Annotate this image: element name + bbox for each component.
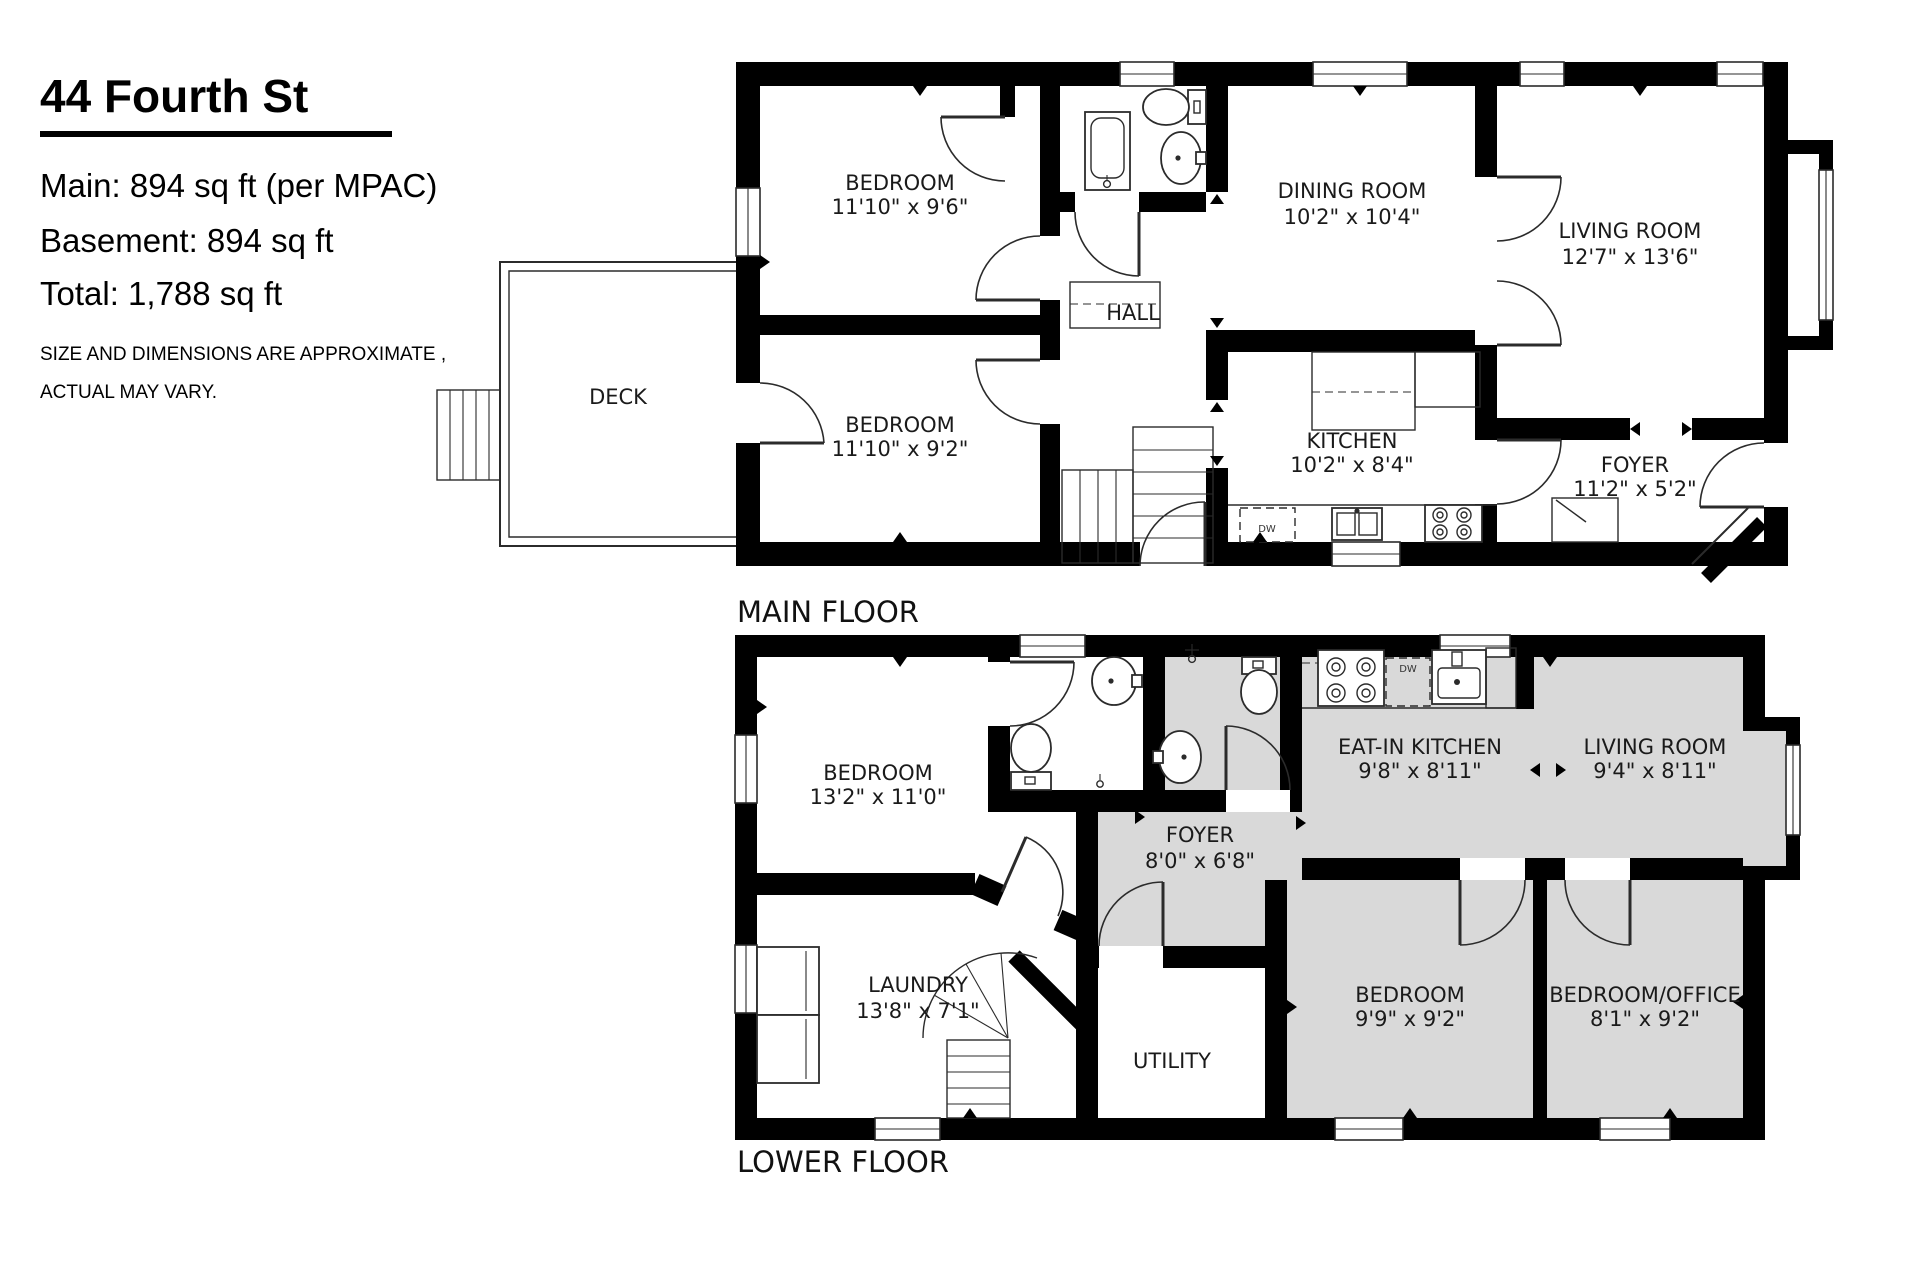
kitchen-sink-icon [1332, 508, 1382, 540]
floorplan-drawing: 44 Fourth St Main: 894 sq ft (per MPAC) … [0, 0, 1920, 1280]
suite-bath-area [1143, 657, 1302, 803]
room-label-foyer: FOYER [1601, 453, 1669, 477]
washer-dryer-icons [757, 947, 819, 1083]
area-total: Total: 1,788 sq ft [40, 275, 282, 312]
door-bedroom2 [976, 360, 1040, 424]
door-front [1700, 443, 1764, 507]
room-label-bedroom1: BEDROOM [845, 171, 955, 195]
window [1520, 62, 1564, 86]
window [735, 735, 757, 803]
main-floor-label: MAIN FLOOR [737, 595, 919, 629]
dishwasher-icon: DW [1240, 508, 1295, 542]
room-dims-bedroom2: 11'10" x 9'2" [832, 437, 969, 461]
room-dims-laundry: 13'8" x 7'1" [856, 999, 979, 1023]
room-dims-lower-foyer: 8'0" x 6'8" [1145, 849, 1255, 873]
room-label-bedroom-office: BEDROOM/OFFICE [1549, 983, 1741, 1007]
room-dims-bedroom1: 11'10" x 9'6" [832, 195, 969, 219]
door-lower-bedroom [1002, 837, 1063, 916]
suite-bay-area [1743, 731, 1786, 866]
room-dims-lower-living: 9'4" x 8'11" [1593, 759, 1716, 783]
room-label-utility: UTILITY [1133, 1049, 1211, 1073]
room-label-hall: HALL [1106, 301, 1160, 325]
room-dims-lower-bedroom2: 9'9" x 9'2" [1355, 1007, 1465, 1031]
room-label-lower-foyer: FOYER [1166, 823, 1234, 847]
room-label-laundry: LAUNDRY [868, 973, 968, 997]
disclaimer-line1: SIZE AND DIMENSIONS ARE APPROXIMATE , [40, 344, 446, 365]
room-label-dining: DINING ROOM [1278, 179, 1427, 203]
area-basement: Basement: 894 sq ft [40, 222, 334, 259]
header-block: 44 Fourth St Main: 894 sq ft (per MPAC) … [40, 70, 446, 403]
window [1332, 542, 1400, 566]
kitchen-sink-icon [1432, 650, 1486, 704]
door-bathroom [1075, 212, 1139, 276]
room-label-deck: DECK [589, 385, 648, 409]
room-label-living: LIVING ROOM [1559, 219, 1702, 243]
main-floor-plan: DW [437, 62, 1833, 629]
room-label-eatin-kitchen: EAT-IN KITCHEN [1338, 735, 1502, 759]
toilet-icon [1143, 89, 1206, 125]
disclaimer-line2: ACTUAL MAY VARY. [40, 382, 217, 403]
stove-icon [1318, 650, 1384, 706]
dw-label: DW [1399, 664, 1417, 675]
french-doors [1497, 177, 1561, 345]
window [1819, 170, 1833, 320]
window [736, 188, 760, 256]
window [1335, 1118, 1403, 1140]
room-dims-living: 12'7" x 13'6" [1562, 245, 1699, 269]
sink-icon [1092, 657, 1142, 705]
page-title: 44 Fourth St [40, 70, 308, 122]
room-label-lower-living: LIVING ROOM [1584, 735, 1727, 759]
lower-floor-plan: DW BEDROOM [735, 635, 1800, 1179]
room-dims-dining: 10'2" x 10'4" [1284, 205, 1421, 229]
door-lower-bath [1010, 662, 1074, 726]
room-dims-eatin-kitchen: 9'8" x 8'11" [1358, 759, 1481, 783]
room-label-lower-bedroom2: BEDROOM [1355, 983, 1465, 1007]
room-dims-bedroom-office: 8'1" x 9'2" [1590, 1007, 1700, 1031]
room-dims-lower-bedroom: 13'2" x 11'0" [810, 785, 947, 809]
area-main: Main: 894 sq ft (per MPAC) [40, 167, 437, 204]
window [1786, 745, 1800, 835]
room-label-kitchen: KITCHEN [1307, 429, 1398, 453]
door-deck [760, 383, 824, 443]
faucet-icon [1097, 774, 1103, 787]
foyer-closet [1552, 498, 1618, 542]
room-label-bedroom2: BEDROOM [845, 413, 955, 437]
room-dims-foyer: 11'2" x 5'2" [1573, 477, 1696, 501]
window [875, 1118, 940, 1140]
window [735, 945, 757, 1013]
room-dims-kitchen: 10'2" x 8'4" [1290, 453, 1413, 477]
room-label-lower-bedroom: BEDROOM [823, 761, 933, 785]
deck-structure [437, 262, 736, 546]
door-bedroom1 [976, 236, 1040, 300]
floorplan-page: 44 Fourth St Main: 894 sq ft (per MPAC) … [0, 0, 1920, 1280]
bathtub-icon [1085, 112, 1130, 190]
window [1120, 62, 1174, 86]
window [1313, 62, 1407, 86]
window [1717, 62, 1763, 86]
window [1020, 635, 1085, 657]
toilet-icon [1011, 724, 1051, 790]
stove-icon [1425, 505, 1482, 542]
sink-icon [1161, 132, 1206, 184]
toilet-icon [1241, 657, 1277, 714]
door-kitchen-foyer [1497, 440, 1561, 504]
lower-floor-label: LOWER FLOOR [737, 1145, 949, 1179]
window [1600, 1118, 1670, 1140]
